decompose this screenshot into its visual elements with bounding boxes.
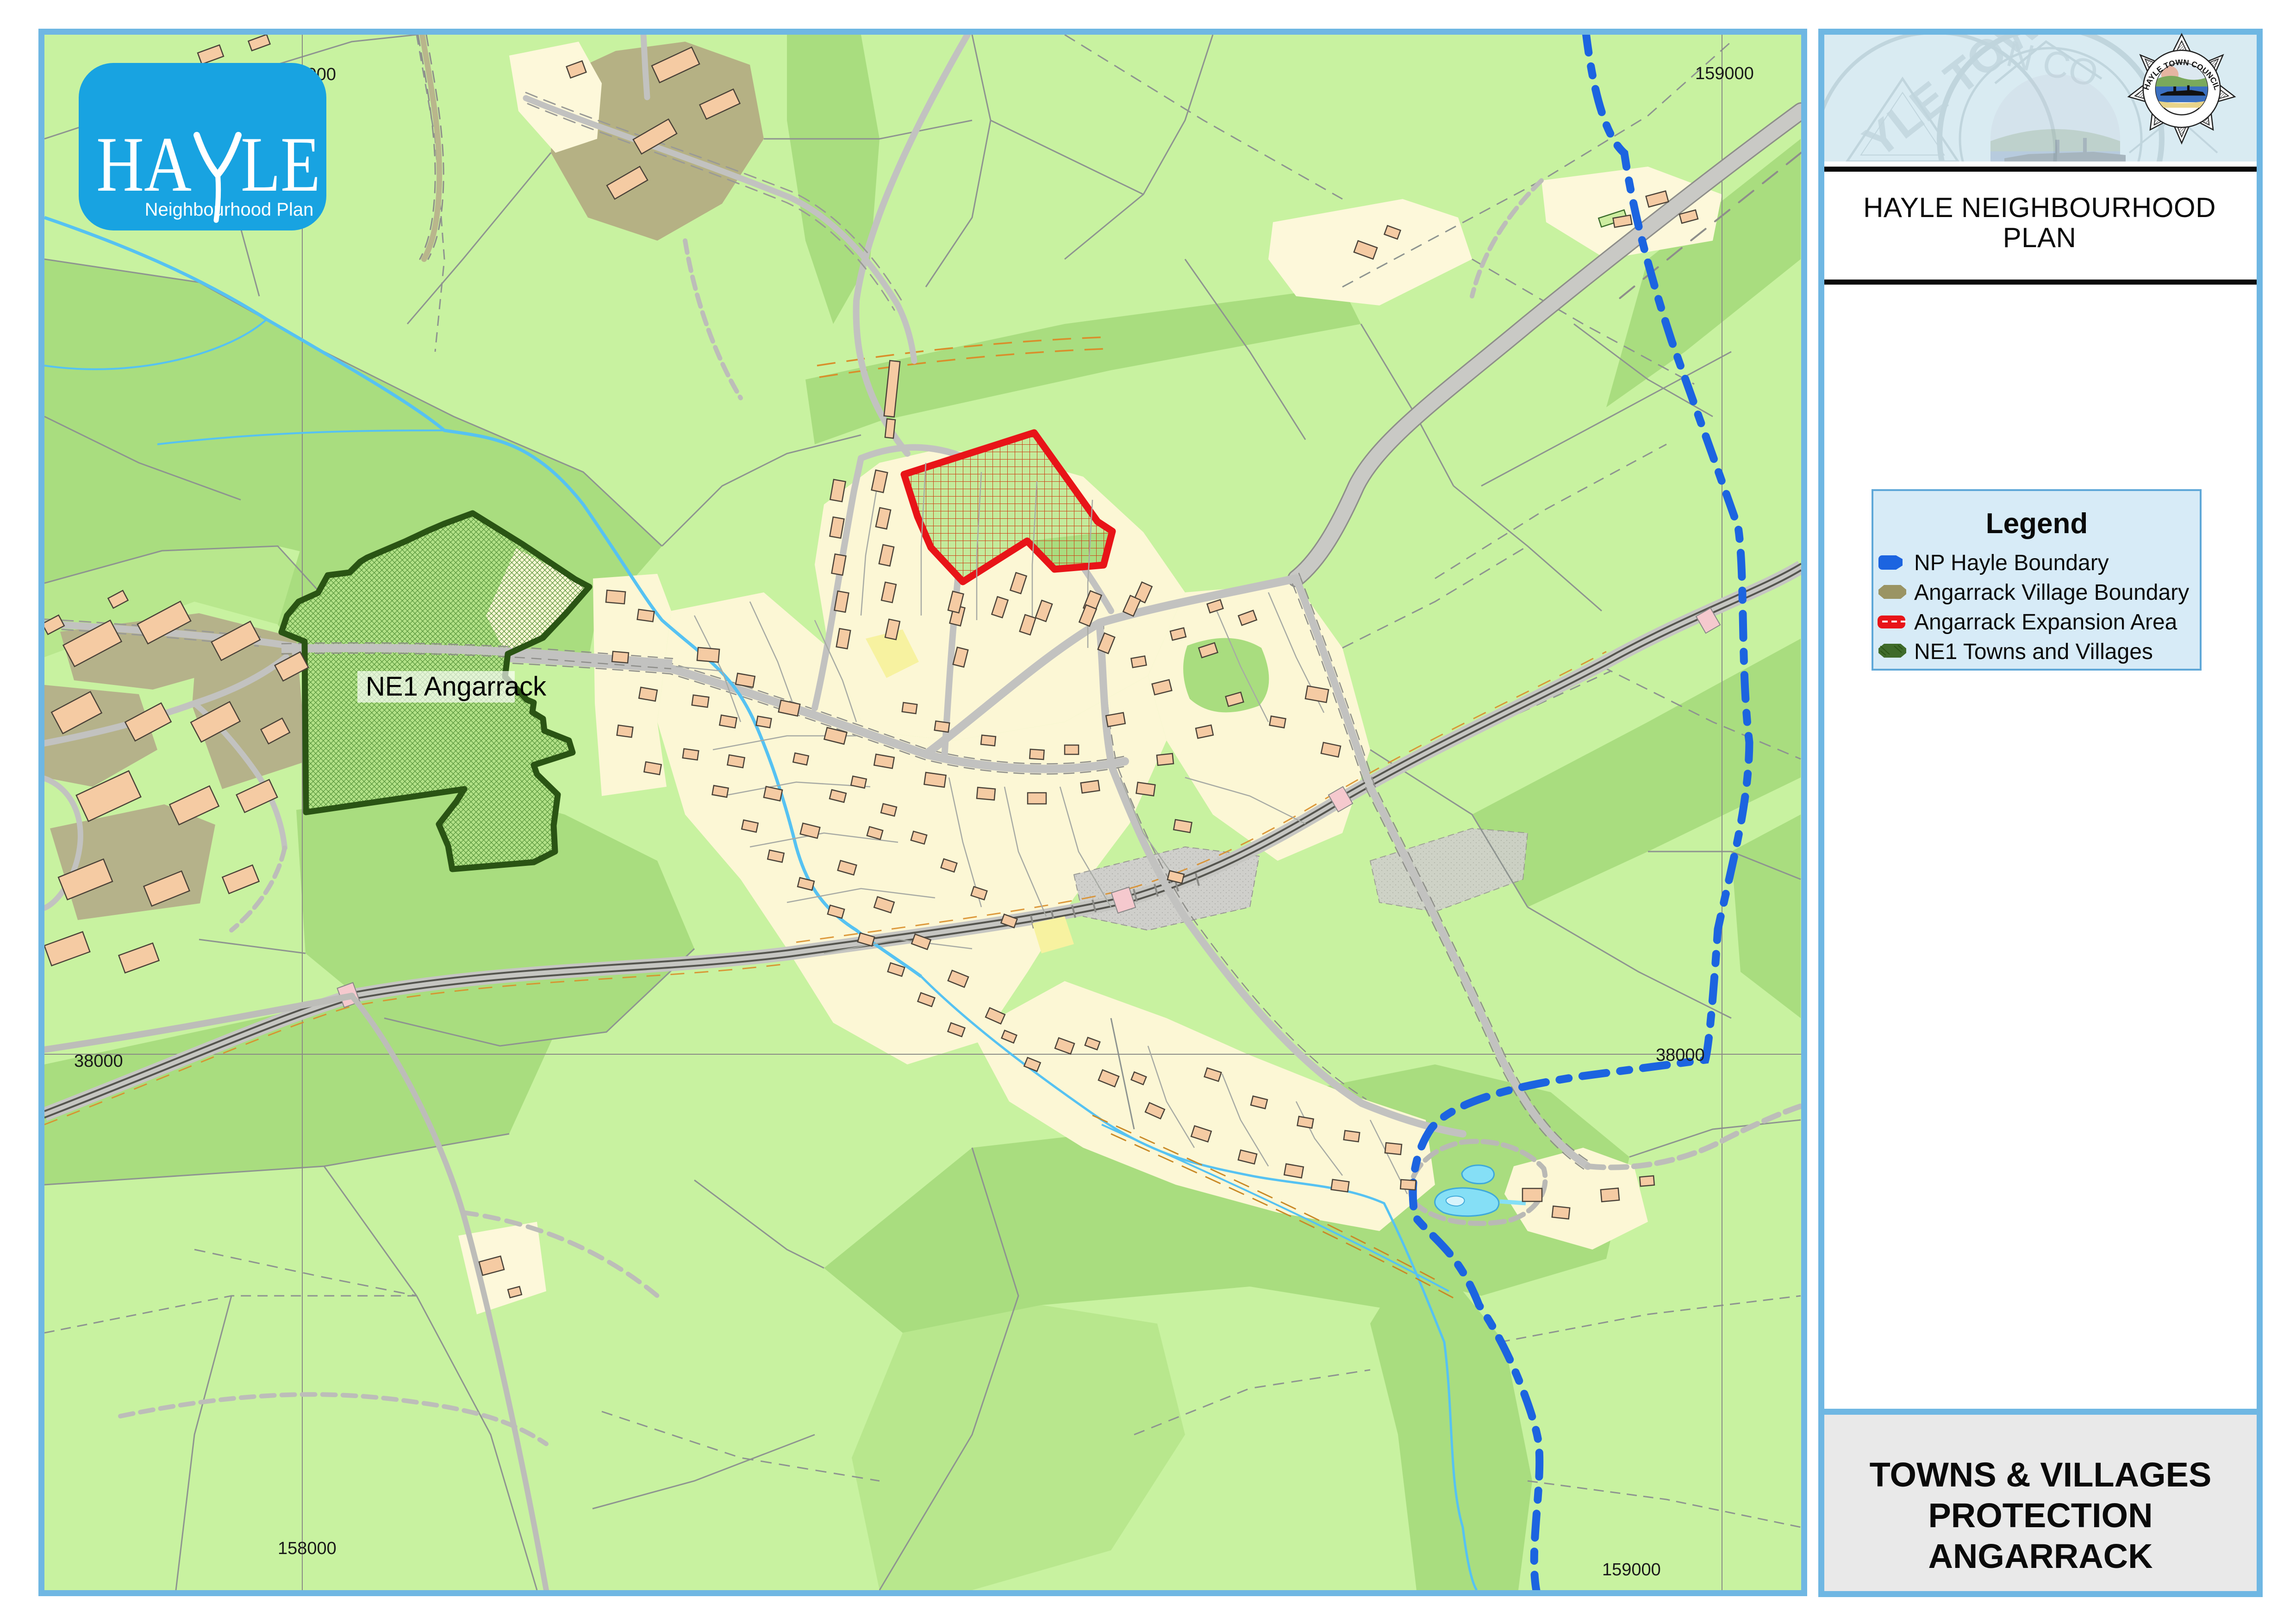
- svg-text:TOWNS & VILLAGES: TOWNS & VILLAGES: [1870, 1455, 2212, 1494]
- svg-text:NP Hayle Boundary: NP Hayle Boundary: [1914, 551, 2109, 575]
- svg-text:ANGARRACK: ANGARRACK: [1928, 1537, 2152, 1575]
- svg-text:NE1 Angarrack: NE1 Angarrack: [366, 672, 547, 702]
- svg-text:38000: 38000: [1656, 1045, 1705, 1065]
- svg-text:HAYLE NEIGHBOURHOOD: HAYLE NEIGHBOURHOOD: [1863, 192, 2216, 223]
- svg-text:Angarrack Expansion Area: Angarrack Expansion Area: [1914, 610, 2177, 634]
- svg-text:159000: 159000: [1695, 64, 1754, 83]
- svg-text:NE1 Towns and Villages: NE1 Towns and Villages: [1914, 640, 2153, 664]
- svg-text:PROTECTION: PROTECTION: [1928, 1496, 2152, 1535]
- svg-text:38000: 38000: [74, 1051, 123, 1071]
- svg-text:Neighbourhood Plan: Neighbourhood Plan: [145, 199, 314, 220]
- svg-text:HA: HA: [96, 121, 192, 208]
- svg-text:Legend: Legend: [1986, 508, 2088, 540]
- svg-text:158000: 158000: [278, 1539, 337, 1558]
- svg-text:LE: LE: [241, 121, 320, 208]
- svg-text:159000: 159000: [1602, 1560, 1661, 1579]
- svg-text:Angarrack Village Boundary: Angarrack Village Boundary: [1914, 580, 2189, 605]
- svg-text:PLAN: PLAN: [2003, 222, 2077, 253]
